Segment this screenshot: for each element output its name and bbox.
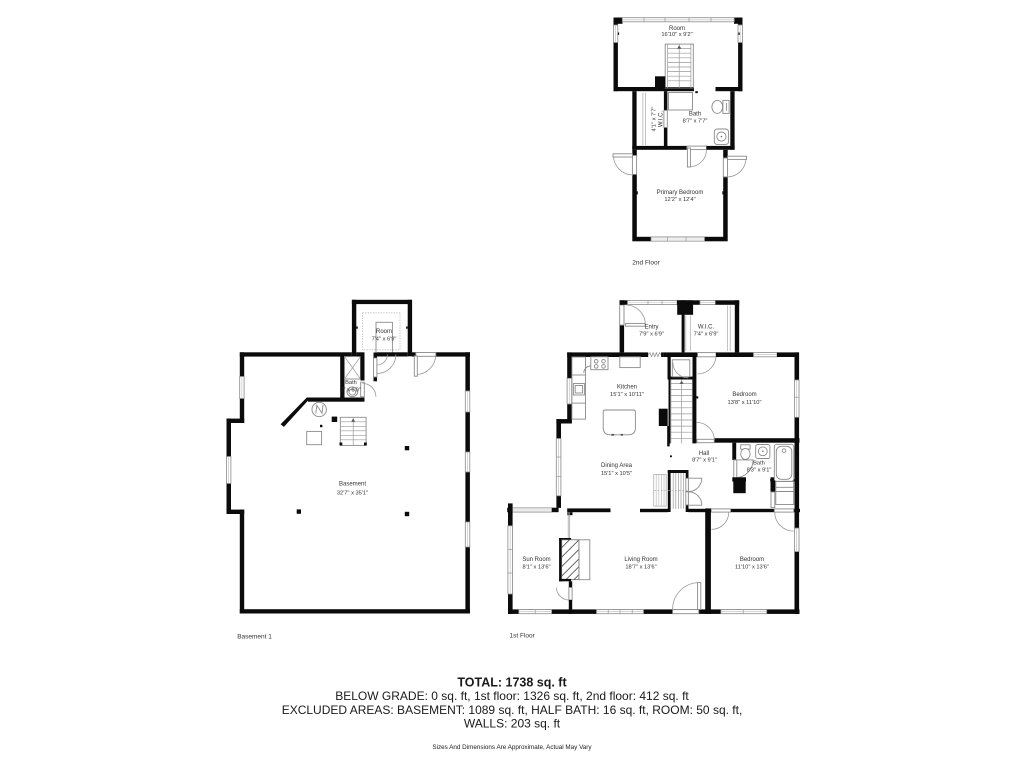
svg-text:Bath: Bath [753, 460, 765, 466]
svg-text:Hall: Hall [699, 451, 709, 457]
svg-text:Sizes And Dimensions Are Appro: Sizes And Dimensions Are Approximate, Ac… [432, 744, 592, 751]
svg-text:7' x 6'0": 7' x 6'0" [341, 387, 361, 393]
svg-text:Living Room: Living Room [624, 557, 657, 563]
svg-text:1st Floor: 1st Floor [510, 632, 536, 639]
svg-text:32'7" x 35'1": 32'7" x 35'1" [337, 491, 368, 497]
svg-text:Primary Bedroom: Primary Bedroom [657, 190, 704, 196]
svg-text:Bath: Bath [345, 380, 357, 386]
svg-text:Basement 1: Basement 1 [237, 634, 272, 641]
svg-text:8'7" x 9'1": 8'7" x 9'1" [692, 457, 717, 463]
svg-text:Bath: Bath [689, 111, 701, 117]
svg-text:18'7" x 13'6": 18'7" x 13'6" [625, 565, 656, 571]
svg-text:8'3" x 9'1": 8'3" x 9'1" [747, 467, 772, 473]
svg-text:15'1" x 10'5": 15'1" x 10'5" [601, 471, 632, 477]
svg-text:13'8" x 11'10": 13'8" x 11'10" [728, 400, 762, 406]
svg-text:15'1" x 10'11": 15'1" x 10'11" [610, 392, 644, 398]
svg-text:2nd Floor: 2nd Floor [632, 260, 660, 267]
svg-text:TOTAL: 1738 sq. ft: TOTAL: 1738 sq. ft [457, 675, 567, 689]
svg-text:BELOW GRADE: 0 sq. ft, 1st flo: BELOW GRADE: 0 sq. ft, 1st floor: 1326 s… [335, 689, 689, 703]
svg-text:8'7" x 7'7": 8'7" x 7'7" [683, 118, 708, 124]
svg-text:4'1" x 7'7": 4'1" x 7'7" [652, 107, 658, 132]
svg-text:WALLS: 203 sq. ft: WALLS: 203 sq. ft [464, 717, 561, 731]
svg-text:11'10" x 13'6": 11'10" x 13'6" [735, 565, 769, 571]
svg-text:Bedroom: Bedroom [732, 392, 756, 398]
svg-text:8'1" x 13'6": 8'1" x 13'6" [522, 565, 550, 571]
svg-text:W.I.C.: W.I.C. [659, 111, 665, 128]
svg-text:16'10" x 9'2": 16'10" x 9'2" [661, 32, 692, 38]
svg-text:Sun Room: Sun Room [522, 557, 550, 563]
svg-text:Room: Room [376, 329, 392, 335]
svg-text:Kitchen: Kitchen [617, 384, 637, 390]
svg-text:EXCLUDED AREAS: BASEMENT: 1089: EXCLUDED AREAS: BASEMENT: 1089 sq. ft, H… [282, 703, 743, 717]
svg-text:Dining Area: Dining Area [601, 463, 633, 469]
svg-text:7'9" x 6'9": 7'9" x 6'9" [639, 331, 664, 337]
svg-text:Entry: Entry [644, 324, 658, 330]
svg-text:7'4" x 6'9": 7'4" x 6'9" [694, 331, 719, 337]
svg-text:12'2" x 12'4": 12'2" x 12'4" [664, 197, 695, 203]
svg-text:Bedroom: Bedroom [740, 557, 764, 563]
svg-text:W.I.C.: W.I.C. [698, 324, 715, 330]
svg-text:Room: Room [669, 26, 685, 32]
svg-text:7'4" x 6'9": 7'4" x 6'9" [372, 336, 397, 342]
svg-text:Basement: Basement [339, 482, 366, 488]
